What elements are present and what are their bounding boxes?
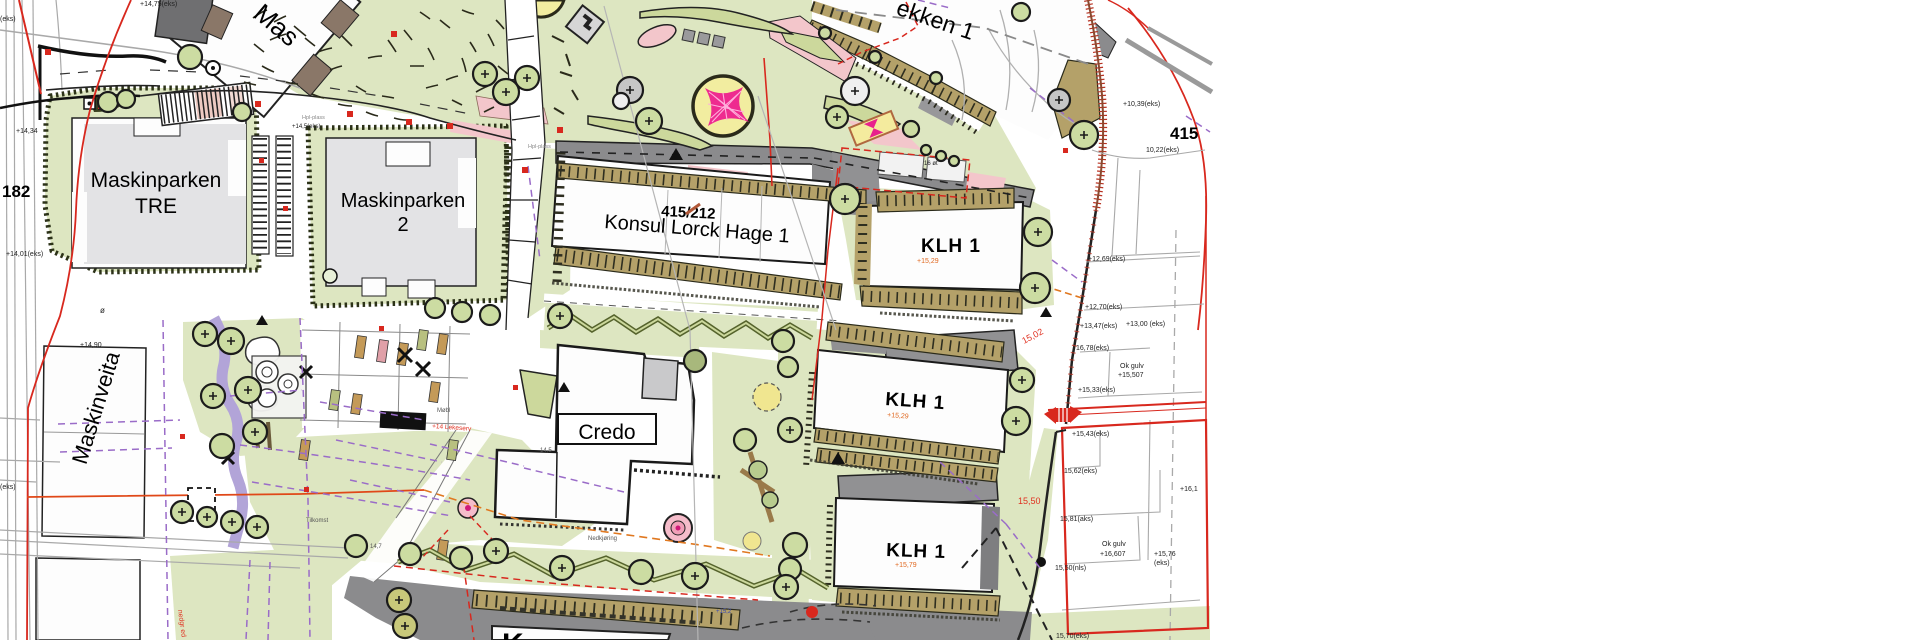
svg-text:+12,69(eks): +12,69(eks) [1088, 256, 1125, 263]
svg-text:+12,70(eks): +12,70(eks) [1085, 304, 1122, 311]
svg-text:+16,1: +16,1 [1180, 486, 1198, 493]
svg-text:(eks): (eks) [1154, 560, 1170, 567]
svg-text:+13,00 (eks): +13,00 (eks) [1126, 321, 1165, 328]
svg-text:15,62(eks): 15,62(eks) [1064, 468, 1097, 475]
svg-text:+16,607: +16,607 [1100, 551, 1126, 558]
svg-text:+14,75(eks): +14,75(eks) [140, 1, 177, 8]
svg-text:Maskinparken: Maskinparken [341, 190, 466, 212]
svg-text:Maskinparken: Maskinparken [91, 169, 222, 192]
svg-text:16 øt: 16 øt [924, 161, 938, 167]
svg-text:(eks): (eks) [0, 16, 16, 23]
svg-text:+14,90: +14,90 [80, 342, 102, 349]
svg-text:+15,2: +15,2 [716, 609, 732, 615]
svg-text:15,50: 15,50 [1018, 496, 1041, 506]
svg-text:+13,47(eks): +13,47(eks) [1080, 323, 1117, 330]
svg-text:Hpl-plass: Hpl-plass [302, 115, 325, 121]
svg-text:TRE: TRE [135, 195, 177, 218]
svg-text:14,7: 14,7 [370, 544, 382, 550]
svg-text:Ok gulv: Ok gulv [1102, 541, 1126, 548]
svg-text:+15,507: +15,507 [1118, 372, 1144, 379]
svg-text:2: 2 [397, 214, 408, 236]
svg-text:+15,76: +15,76 [1154, 551, 1176, 558]
svg-text:K: K [502, 628, 524, 640]
svg-text:(eks): (eks) [0, 484, 16, 491]
svg-text:KLH 1: KLH 1 [886, 540, 947, 563]
svg-text:Møbl: Møbl [437, 408, 450, 414]
svg-text:+15,29: +15,29 [917, 258, 939, 265]
svg-text:15,81(aks): 15,81(aks) [1060, 516, 1093, 523]
svg-text:+10,39(eks): +10,39(eks) [1123, 101, 1160, 108]
svg-text:Tilkomst: Tilkomst [306, 518, 328, 524]
svg-text:15,50(nls): 15,50(nls) [1055, 565, 1086, 572]
svg-text:+15,33(eks): +15,33(eks) [1078, 387, 1115, 394]
svg-text:+14,34: +14,34 [16, 128, 38, 135]
svg-text:+14,5(eks): +14,5(eks) [292, 124, 321, 130]
svg-text:16,78(eks): 16,78(eks) [1076, 345, 1109, 352]
svg-text:KLH 1: KLH 1 [921, 236, 981, 257]
svg-text:15,02: 15,02 [1020, 326, 1045, 345]
svg-text:Hpl-plass: Hpl-plass [528, 144, 551, 150]
svg-text:Nedkjøring: Nedkjøring [588, 536, 617, 542]
svg-text:ø: ø [100, 306, 105, 315]
svg-text:10,22(eks): 10,22(eks) [1146, 147, 1179, 154]
svg-text:Credo: Credo [578, 421, 635, 444]
svg-text:14,5: 14,5 [540, 448, 552, 454]
svg-text:Ok gulv: Ok gulv [1120, 363, 1144, 370]
svg-text:415: 415 [1170, 124, 1198, 143]
svg-text:+14,01(eks): +14,01(eks) [6, 251, 43, 258]
svg-text:+15,43(eks): +15,43(eks) [1072, 431, 1109, 438]
svg-text:KLH 1: KLH 1 [885, 389, 946, 414]
svg-text:15,70(eks): 15,70(eks) [1056, 633, 1089, 640]
svg-text:+15,79: +15,79 [895, 562, 917, 569]
svg-text:182: 182 [2, 182, 30, 201]
